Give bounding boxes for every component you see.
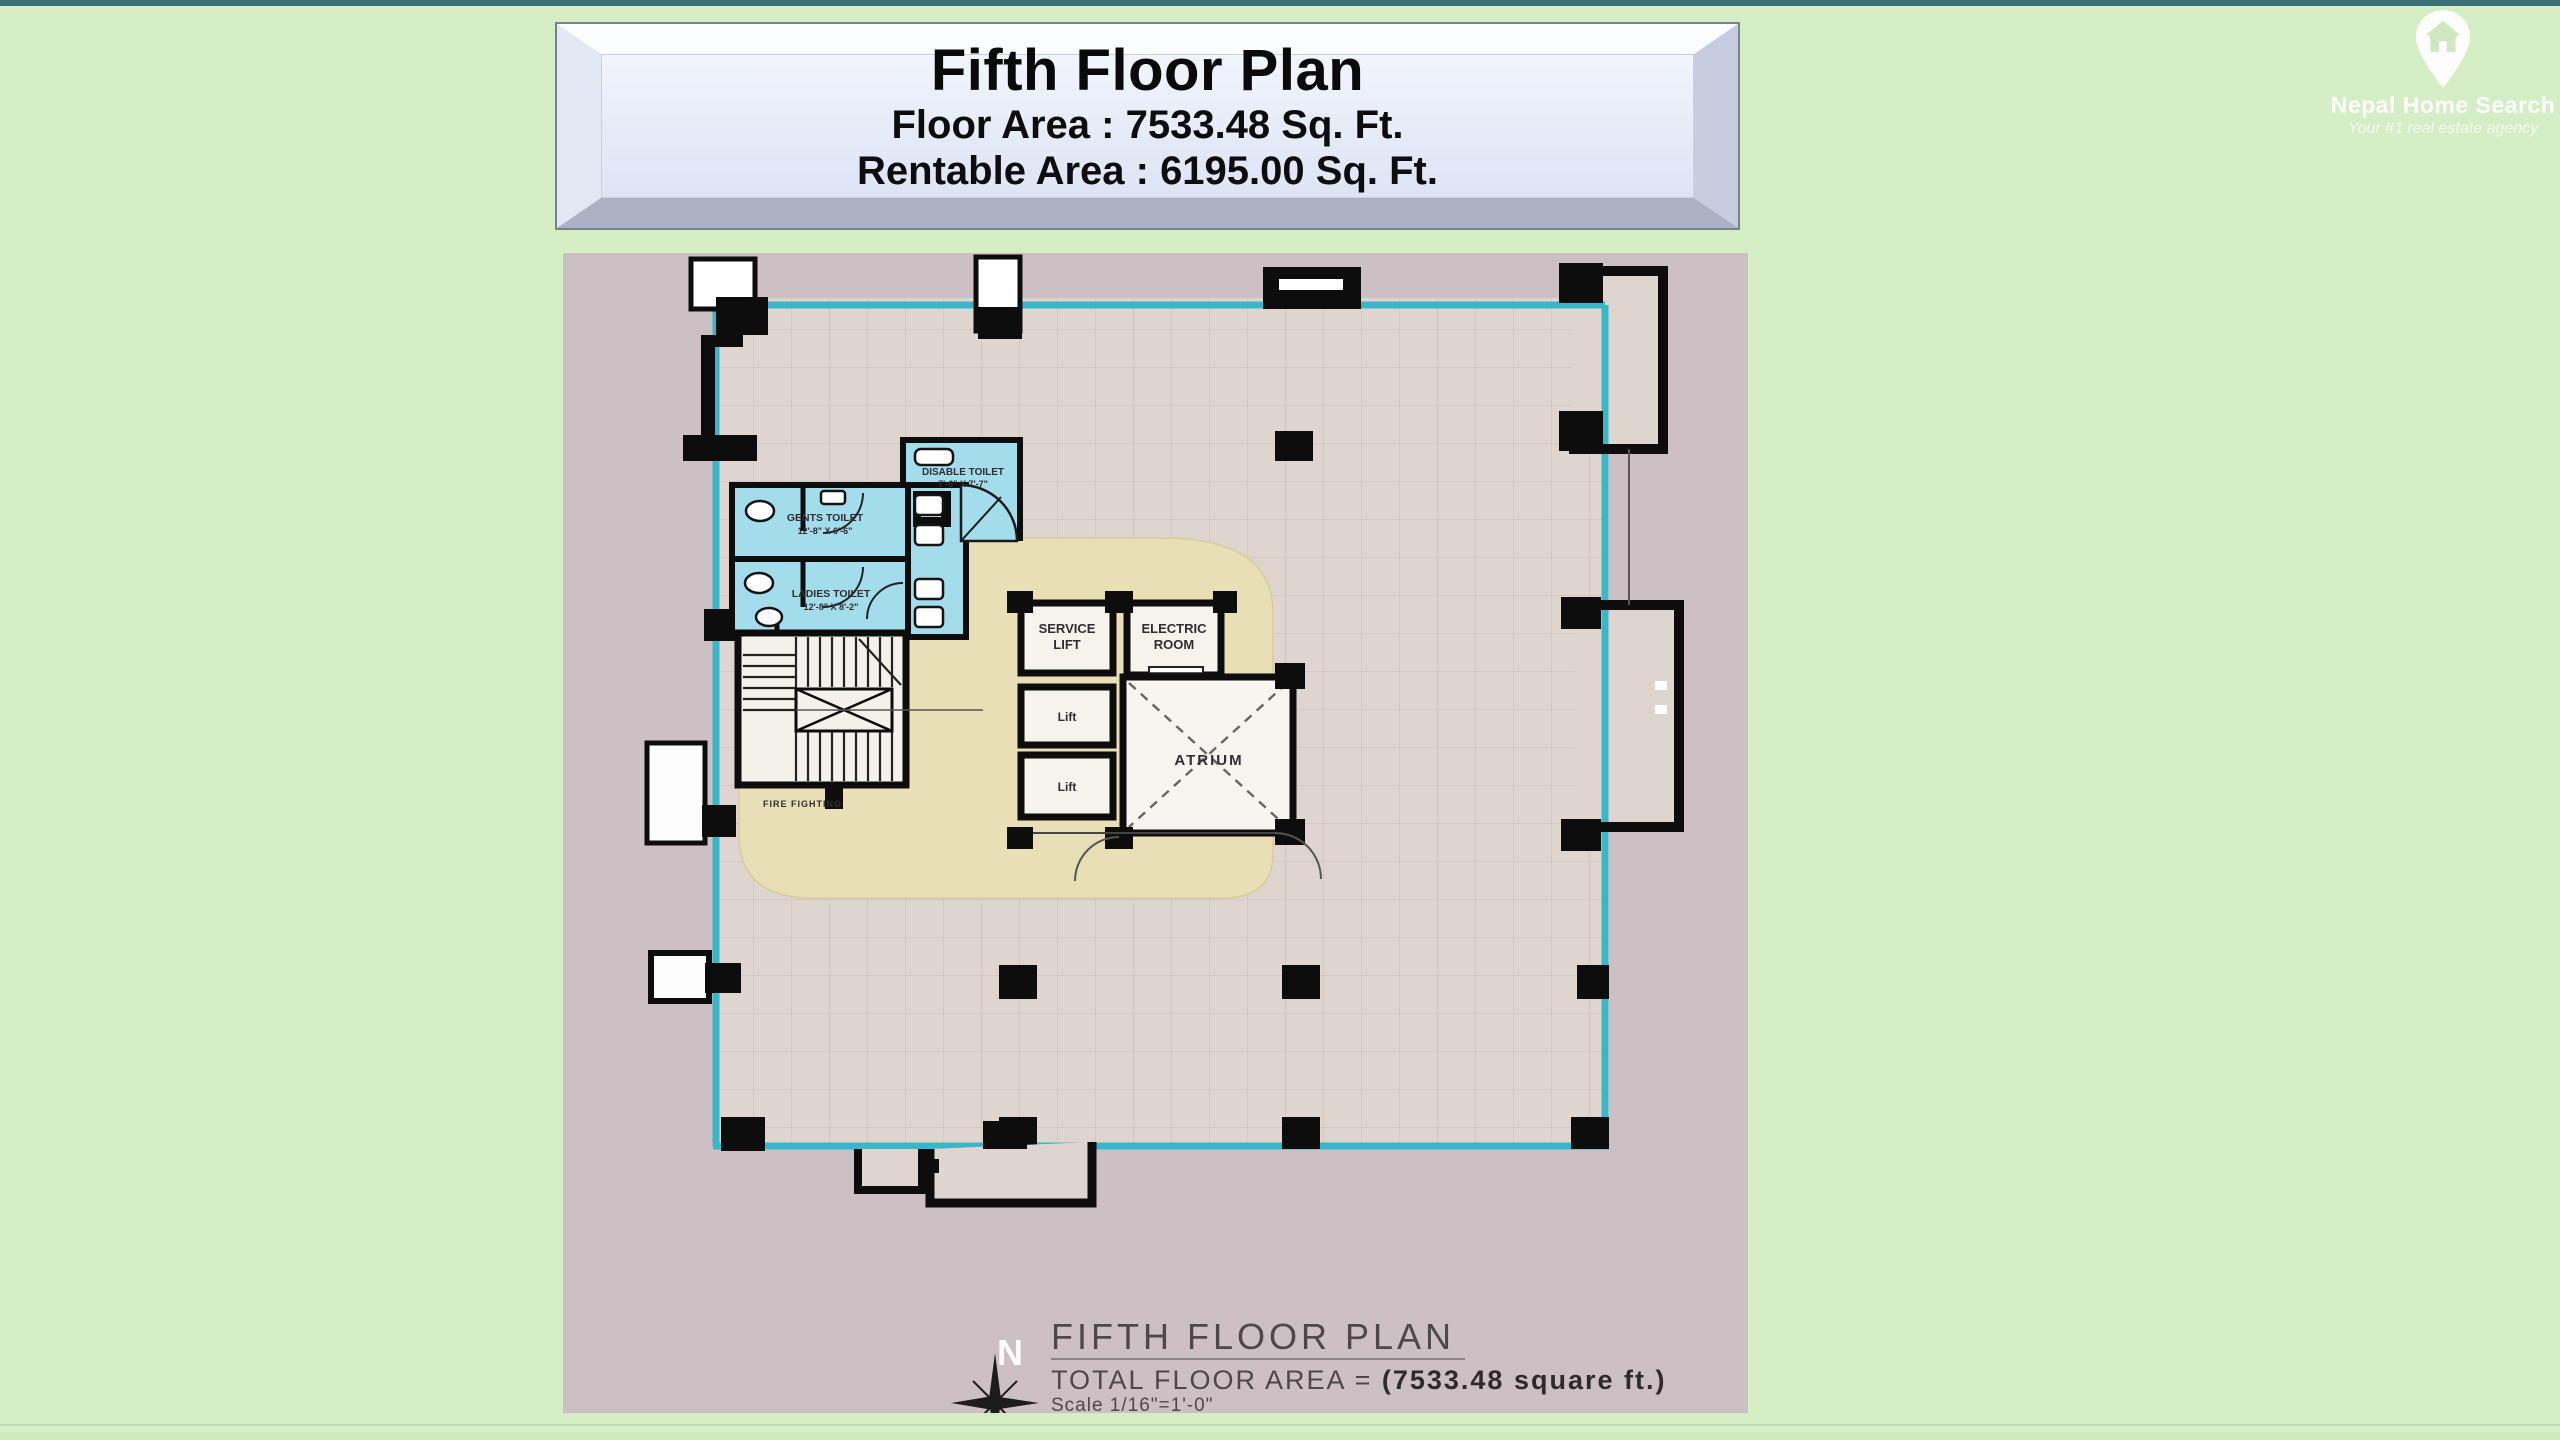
fire-fighting-label: FIRE FIGHTING <box>763 799 842 809</box>
bottom-accent-strip <box>0 1432 2560 1440</box>
plan-area-prefix: TOTAL FLOOR AREA = <box>1051 1365 1382 1395</box>
service-lift-label-2: LIFT <box>1053 637 1080 652</box>
title-box: Fifth Floor Plan Floor Area : 7533.48 Sq… <box>557 24 1738 228</box>
plan-scale: Scale 1/16"=1'-0" <box>1051 1395 1213 1413</box>
background-seam-line <box>0 1424 2560 1426</box>
page-title: Fifth Floor Plan <box>601 40 1694 102</box>
house-map-pin-icon <box>2412 8 2474 90</box>
north-letter: N <box>997 1332 1023 1373</box>
gents-toilet-label: GENTS TOILET <box>787 512 864 524</box>
brand-logo: Nepal Home Search Your #1 real estate ag… <box>2330 8 2556 138</box>
column-outline <box>651 953 709 1001</box>
disable-toilet-dims: 7'-6" X 7'-7" <box>938 479 988 489</box>
plan-area-value: (7533.48 square ft.) <box>1382 1365 1667 1395</box>
lift-lower-label: Lift <box>1058 780 1077 794</box>
floor-plan-image: FIRE FIGHTING <box>563 253 1748 1413</box>
balcony-mid-right-floor <box>1575 609 1677 823</box>
top-accent-strip <box>0 0 2560 6</box>
electric-room-label-2: ROOM <box>1154 637 1194 652</box>
refuge-landing <box>647 743 705 843</box>
ladies-toilet-dims: 12'-8" X 8'-2" <box>804 602 859 612</box>
brand-name: Nepal Home Search <box>2330 92 2556 119</box>
plan-title: FIFTH FLOOR PLAN <box>1051 1316 1455 1357</box>
brand-tagline: Your #1 real estate agency <box>2330 120 2556 138</box>
wall-tick <box>1655 705 1667 714</box>
floor-area-line: Floor Area : 7533.48 Sq. Ft. <box>601 102 1694 148</box>
plan-area-line: TOTAL FLOOR AREA = (7533.48 square ft.) <box>1051 1365 1666 1395</box>
ladies-toilet-label: LADIES TOILET <box>792 588 871 600</box>
disable-toilet-label: DISABLE TOILET <box>922 467 1004 478</box>
page: Fifth Floor Plan Floor Area : 7533.48 Sq… <box>0 0 2560 1440</box>
atrium-label: ATRIUM <box>1174 752 1243 769</box>
lift-upper-label: Lift <box>1058 710 1077 724</box>
gents-toilet-dims: 12'-8" X 6'-6" <box>798 526 853 536</box>
wall-tick <box>1655 681 1667 690</box>
service-lift-label-1: SERVICE <box>1039 621 1096 636</box>
electric-room-label-1: ELECTRIC <box>1142 621 1208 636</box>
rentable-area-line: Rentable Area : 6195.00 Sq. Ft. <box>601 148 1694 194</box>
